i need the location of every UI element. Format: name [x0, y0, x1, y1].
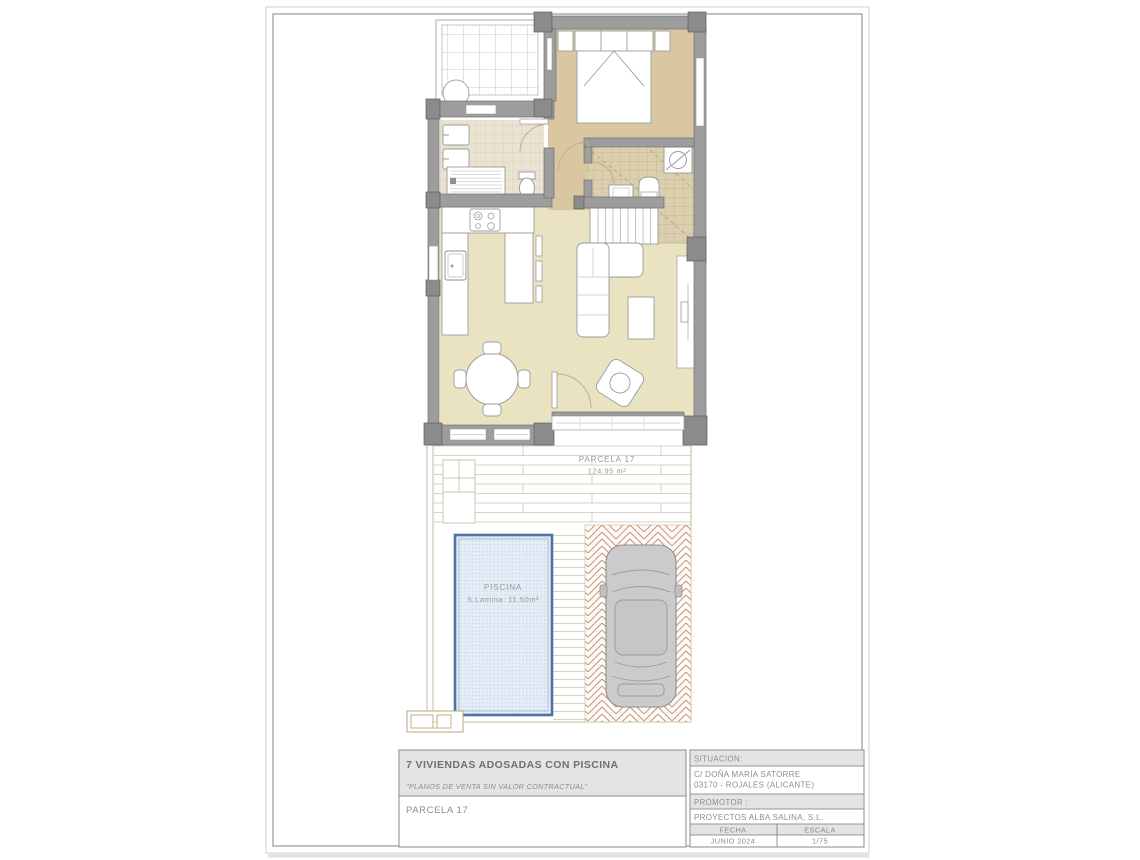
- window-icon: [429, 246, 438, 280]
- drawing-sheet-page: PARCELA 17 124.95 m² PISCINA S.Lamina: 1…: [0, 0, 1140, 860]
- window-icon: [696, 58, 704, 126]
- fecha-value: JUNIO 2024: [711, 837, 756, 846]
- project-title: 7 VIVIENDAS ADOSADAS CON PISCINA: [406, 759, 619, 771]
- nightstand-icon: [558, 31, 573, 51]
- parcel-name-label: PARCELA 17: [579, 455, 636, 464]
- parcel-area-label: 124.95 m²: [588, 467, 627, 476]
- walkway-paving: [553, 530, 585, 722]
- door-leaf: [520, 119, 548, 124]
- car-mirror: [675, 585, 682, 597]
- chair-icon: [518, 370, 530, 388]
- drain-icon: [450, 178, 456, 184]
- nightstand-icon: [655, 31, 670, 51]
- situacion-label: SITUACION:: [694, 755, 743, 764]
- promotor-value: PROYECTOS ALBA SALINA, S.L.: [694, 813, 823, 822]
- window-icon: [547, 38, 552, 70]
- floor-plan-drawing: PARCELA 17 124.95 m² PISCINA S.Lamina: 1…: [0, 0, 1140, 860]
- chair-icon: [454, 370, 466, 388]
- kitchen-peninsula: [505, 233, 533, 303]
- dining-table-icon: [466, 353, 518, 405]
- escala-value: 1/75: [812, 837, 828, 846]
- car-mirror: [600, 585, 607, 597]
- window-icon: [466, 105, 496, 114]
- patio: [436, 20, 546, 110]
- fecha-label: FECHA: [719, 826, 746, 835]
- disclaimer-text: "PLANOS DE VENTA SIN VALOR CONTRACTUAL": [406, 782, 588, 791]
- car-roof: [615, 600, 667, 655]
- escala-label: ESCALA: [804, 826, 836, 835]
- car: [600, 545, 682, 707]
- pool: [455, 535, 552, 715]
- address-line2: 03170 - ROJALES (ALICANTE): [694, 781, 814, 790]
- tv-unit-icon: [681, 302, 688, 322]
- promotor-label: PROMOTOR :: [694, 798, 748, 807]
- bed-icon: [577, 51, 651, 123]
- chair-icon: [483, 342, 501, 354]
- kitchen-counter: [442, 233, 468, 335]
- chair-icon: [483, 404, 501, 416]
- stove-icon: [470, 209, 500, 231]
- sheet-shadow: [268, 854, 869, 858]
- entry-steps: [407, 711, 463, 732]
- address-line1: C/ DOÑA MARÍA SATORRE: [694, 770, 800, 779]
- entry-door-leaf: [552, 372, 557, 408]
- pool-name-label: PISCINA: [484, 583, 522, 592]
- coffee-table-icon: [628, 297, 654, 339]
- title-block: 7 VIVIENDAS ADOSADAS CON PISCINA "PLANOS…: [399, 750, 864, 847]
- parcel-cell: PARCELA 17: [406, 805, 468, 816]
- stairs: [590, 208, 658, 244]
- pool-area-label: S.Lamina: 11.50m²: [467, 595, 539, 604]
